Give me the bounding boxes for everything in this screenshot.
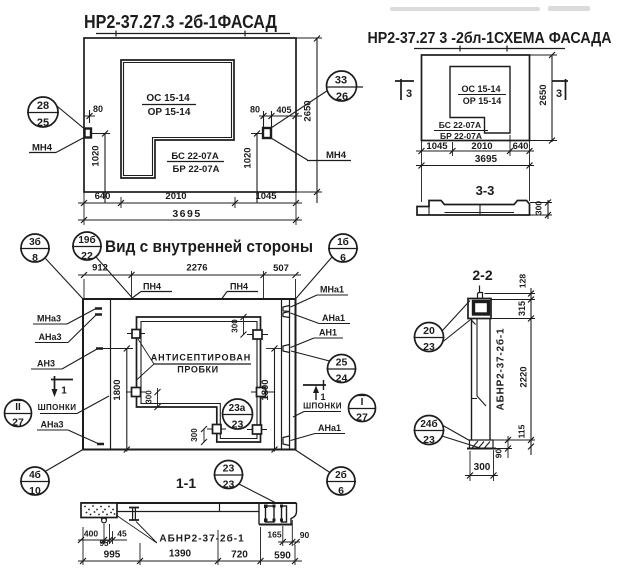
svg-text:АНа3: АНа3 (38, 332, 61, 342)
svg-text:1: 1 (61, 386, 67, 397)
svg-text:128: 128 (518, 274, 528, 288)
svg-text:24: 24 (336, 373, 348, 385)
svg-text:ПРОБКИ: ПРОБКИ (177, 365, 218, 375)
svg-text:НР2-37.27.3 -2б-1ФАСАД: НР2-37.27.3 -2б-1ФАСАД (84, 12, 277, 32)
svg-text:1045: 1045 (255, 191, 277, 202)
svg-text:23: 23 (232, 419, 244, 431)
svg-text:1020: 1020 (91, 145, 102, 166)
svg-text:ПН4: ПН4 (143, 282, 161, 292)
svg-text:2-2: 2-2 (472, 267, 492, 283)
svg-text:БС 22-07А: БС 22-07А (439, 120, 481, 130)
svg-text:ШПОНКИ: ШПОНКИ (38, 403, 77, 412)
svg-text:23: 23 (423, 434, 435, 446)
svg-text:1045: 1045 (426, 141, 448, 152)
svg-text:I: I (361, 397, 364, 408)
svg-text:1800: 1800 (260, 379, 271, 400)
svg-text:2220: 2220 (519, 366, 530, 387)
svg-text:МН4: МН4 (326, 150, 347, 161)
svg-text:300: 300 (231, 319, 240, 333)
svg-text:МНа1: МНа1 (320, 285, 344, 295)
svg-text:АНа3: АНа3 (40, 420, 63, 430)
svg-text:6: 6 (338, 485, 344, 497)
svg-text:1390: 1390 (169, 549, 192, 560)
svg-text:БС 22-07А: БС 22-07А (171, 151, 219, 162)
svg-text:АНТИСЕПТИРОВАН: АНТИСЕПТИРОВАН (151, 353, 251, 363)
svg-text:10: 10 (29, 485, 41, 497)
svg-text:ОС 15-14: ОС 15-14 (146, 93, 190, 104)
svg-text:2б: 2б (335, 469, 347, 481)
svg-text:315: 315 (517, 301, 527, 316)
svg-text:3695: 3695 (172, 208, 201, 220)
svg-text:4б: 4б (29, 469, 41, 481)
svg-text:1800: 1800 (112, 379, 123, 400)
svg-text:640: 640 (513, 141, 529, 152)
svg-text:3695: 3695 (475, 154, 498, 165)
svg-text:МНа3: МНа3 (37, 314, 61, 324)
svg-text:1б: 1б (337, 236, 349, 248)
svg-text:90: 90 (300, 530, 310, 540)
svg-text:3б: 3б (29, 236, 41, 248)
svg-text:1020: 1020 (243, 147, 254, 168)
svg-text:ПН4: ПН4 (230, 282, 248, 292)
svg-text:20: 20 (423, 325, 435, 337)
svg-text:23: 23 (223, 463, 235, 475)
svg-text:3: 3 (556, 88, 562, 100)
svg-text:2650: 2650 (303, 100, 314, 121)
svg-text:2010: 2010 (471, 141, 492, 152)
svg-text:ОР 15-14: ОР 15-14 (148, 107, 191, 118)
svg-text:Вид с внутренней стороны: Вид с внутренней стороны (105, 237, 313, 256)
svg-text:ШПОНКИ: ШПОНКИ (303, 402, 342, 411)
svg-text:25: 25 (37, 117, 49, 129)
svg-text:АНа1: АНа1 (322, 313, 345, 323)
svg-text:80: 80 (250, 105, 260, 115)
svg-text:23: 23 (223, 479, 235, 491)
svg-text:ОС 15-14: ОС 15-14 (461, 84, 500, 94)
svg-text:АБНР2-37-2б-1: АБНР2-37-2б-1 (495, 328, 507, 411)
svg-text:1-1: 1-1 (176, 475, 196, 491)
svg-text:590: 590 (274, 551, 291, 562)
svg-text:300: 300 (145, 390, 154, 404)
svg-text:720: 720 (231, 550, 248, 561)
svg-text:115: 115 (517, 424, 527, 438)
svg-text:2650: 2650 (538, 84, 549, 105)
svg-text:28: 28 (37, 100, 49, 112)
svg-text:ОР 15-14: ОР 15-14 (463, 96, 502, 106)
svg-text:27: 27 (12, 417, 24, 429)
svg-text:2010: 2010 (165, 191, 186, 202)
svg-text:БР 22-07А: БР 22-07А (440, 131, 482, 141)
svg-text:22: 22 (81, 250, 93, 262)
svg-text:БР 22-07А: БР 22-07А (173, 164, 220, 175)
svg-text:8: 8 (32, 252, 38, 264)
svg-text:6: 6 (340, 252, 346, 264)
svg-text:165: 165 (267, 530, 281, 540)
svg-text:640: 640 (95, 191, 111, 202)
svg-text:23: 23 (423, 341, 435, 353)
svg-text:3-3: 3-3 (476, 183, 495, 198)
svg-text:995: 995 (104, 550, 121, 561)
svg-text:90: 90 (494, 449, 504, 459)
svg-text:19б: 19б (78, 234, 95, 246)
svg-text:1: 1 (320, 392, 325, 402)
svg-text:45: 45 (117, 529, 127, 539)
svg-text:МН4: МН4 (32, 143, 53, 154)
svg-text:23а: 23а (229, 403, 246, 414)
svg-text:300: 300 (534, 201, 544, 215)
svg-text:33: 33 (335, 75, 347, 87)
svg-text:95: 95 (100, 539, 109, 548)
svg-text:26: 26 (336, 91, 348, 103)
svg-text:АНа1: АНа1 (318, 423, 341, 433)
svg-text:3: 3 (406, 88, 412, 100)
svg-text:300: 300 (190, 428, 199, 442)
svg-text:АН1: АН1 (319, 328, 337, 338)
svg-text:300: 300 (474, 462, 491, 473)
svg-text:АН3: АН3 (37, 359, 55, 369)
svg-text:24б: 24б (420, 418, 437, 430)
svg-text:27: 27 (356, 412, 368, 424)
svg-text:80: 80 (93, 104, 103, 114)
svg-text:2276: 2276 (186, 263, 207, 274)
svg-text:507: 507 (273, 263, 289, 274)
svg-text:АБНР2-37-2б-1: АБНР2-37-2б-1 (159, 533, 244, 545)
svg-text:25: 25 (336, 357, 348, 369)
svg-text:400: 400 (84, 529, 98, 539)
svg-text:405: 405 (276, 105, 291, 115)
svg-text:II: II (15, 402, 21, 413)
svg-text:НР2-37.27 3 -2бл-1СХЕМА ФАСАДА: НР2-37.27 3 -2бл-1СХЕМА ФАСАДА (368, 30, 612, 47)
